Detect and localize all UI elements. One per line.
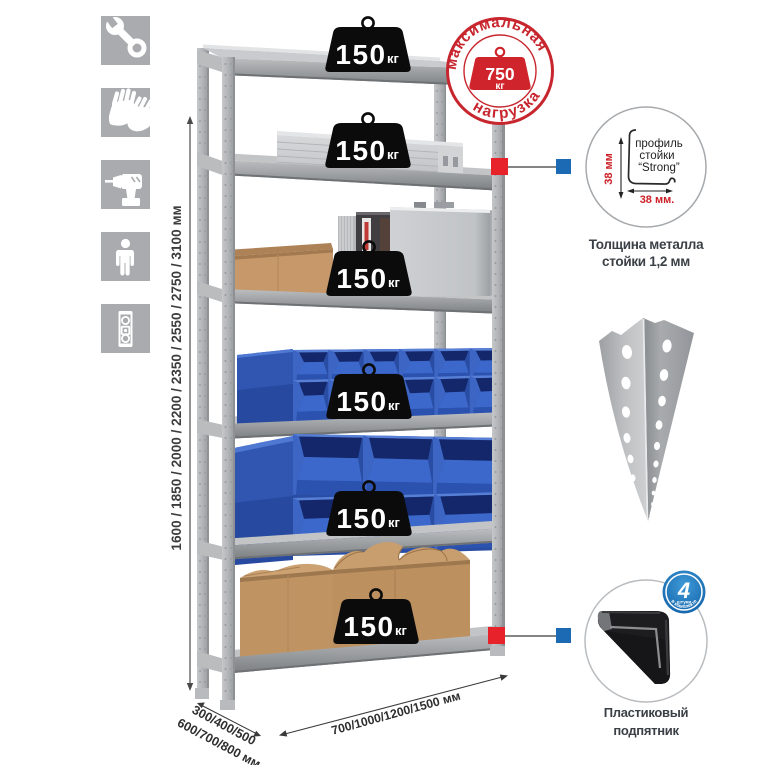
svg-text:150: 150: [336, 386, 387, 417]
svg-text:стойки: стойки: [639, 150, 674, 162]
svg-text:38 мм: 38 мм: [603, 153, 615, 185]
svg-text:Толщина металла: Толщина металла: [589, 237, 704, 252]
svg-text:кг: кг: [388, 275, 401, 290]
svg-text:Пластиковый: Пластиковый: [604, 705, 689, 720]
svg-text:кг: кг: [388, 398, 401, 413]
svg-text:150: 150: [336, 263, 387, 294]
svg-text:штуки: штуки: [677, 601, 692, 606]
svg-text:150: 150: [336, 503, 387, 534]
svg-text:150: 150: [335, 39, 386, 70]
svg-text:“Strong”: “Strong”: [638, 162, 680, 174]
svg-text:150: 150: [343, 611, 394, 642]
svg-text:кг: кг: [387, 147, 400, 162]
svg-text:подпятник: подпятник: [613, 723, 679, 738]
svg-text:4: 4: [677, 578, 690, 603]
svg-text:кг: кг: [387, 51, 400, 66]
svg-text:кг: кг: [388, 515, 401, 530]
svg-text:38 мм.: 38 мм.: [640, 194, 675, 206]
svg-text:стойки 1,2 мм: стойки 1,2 мм: [602, 254, 690, 269]
svg-text:кг: кг: [395, 623, 408, 638]
svg-text:профиль: профиль: [635, 138, 683, 150]
svg-text:150: 150: [335, 135, 386, 166]
svg-text:1600 / 1850 / 2000 / 2200 / 23: 1600 / 1850 / 2000 / 2200 / 2350 / 2550 …: [169, 205, 184, 550]
svg-text:кг: кг: [495, 81, 504, 92]
